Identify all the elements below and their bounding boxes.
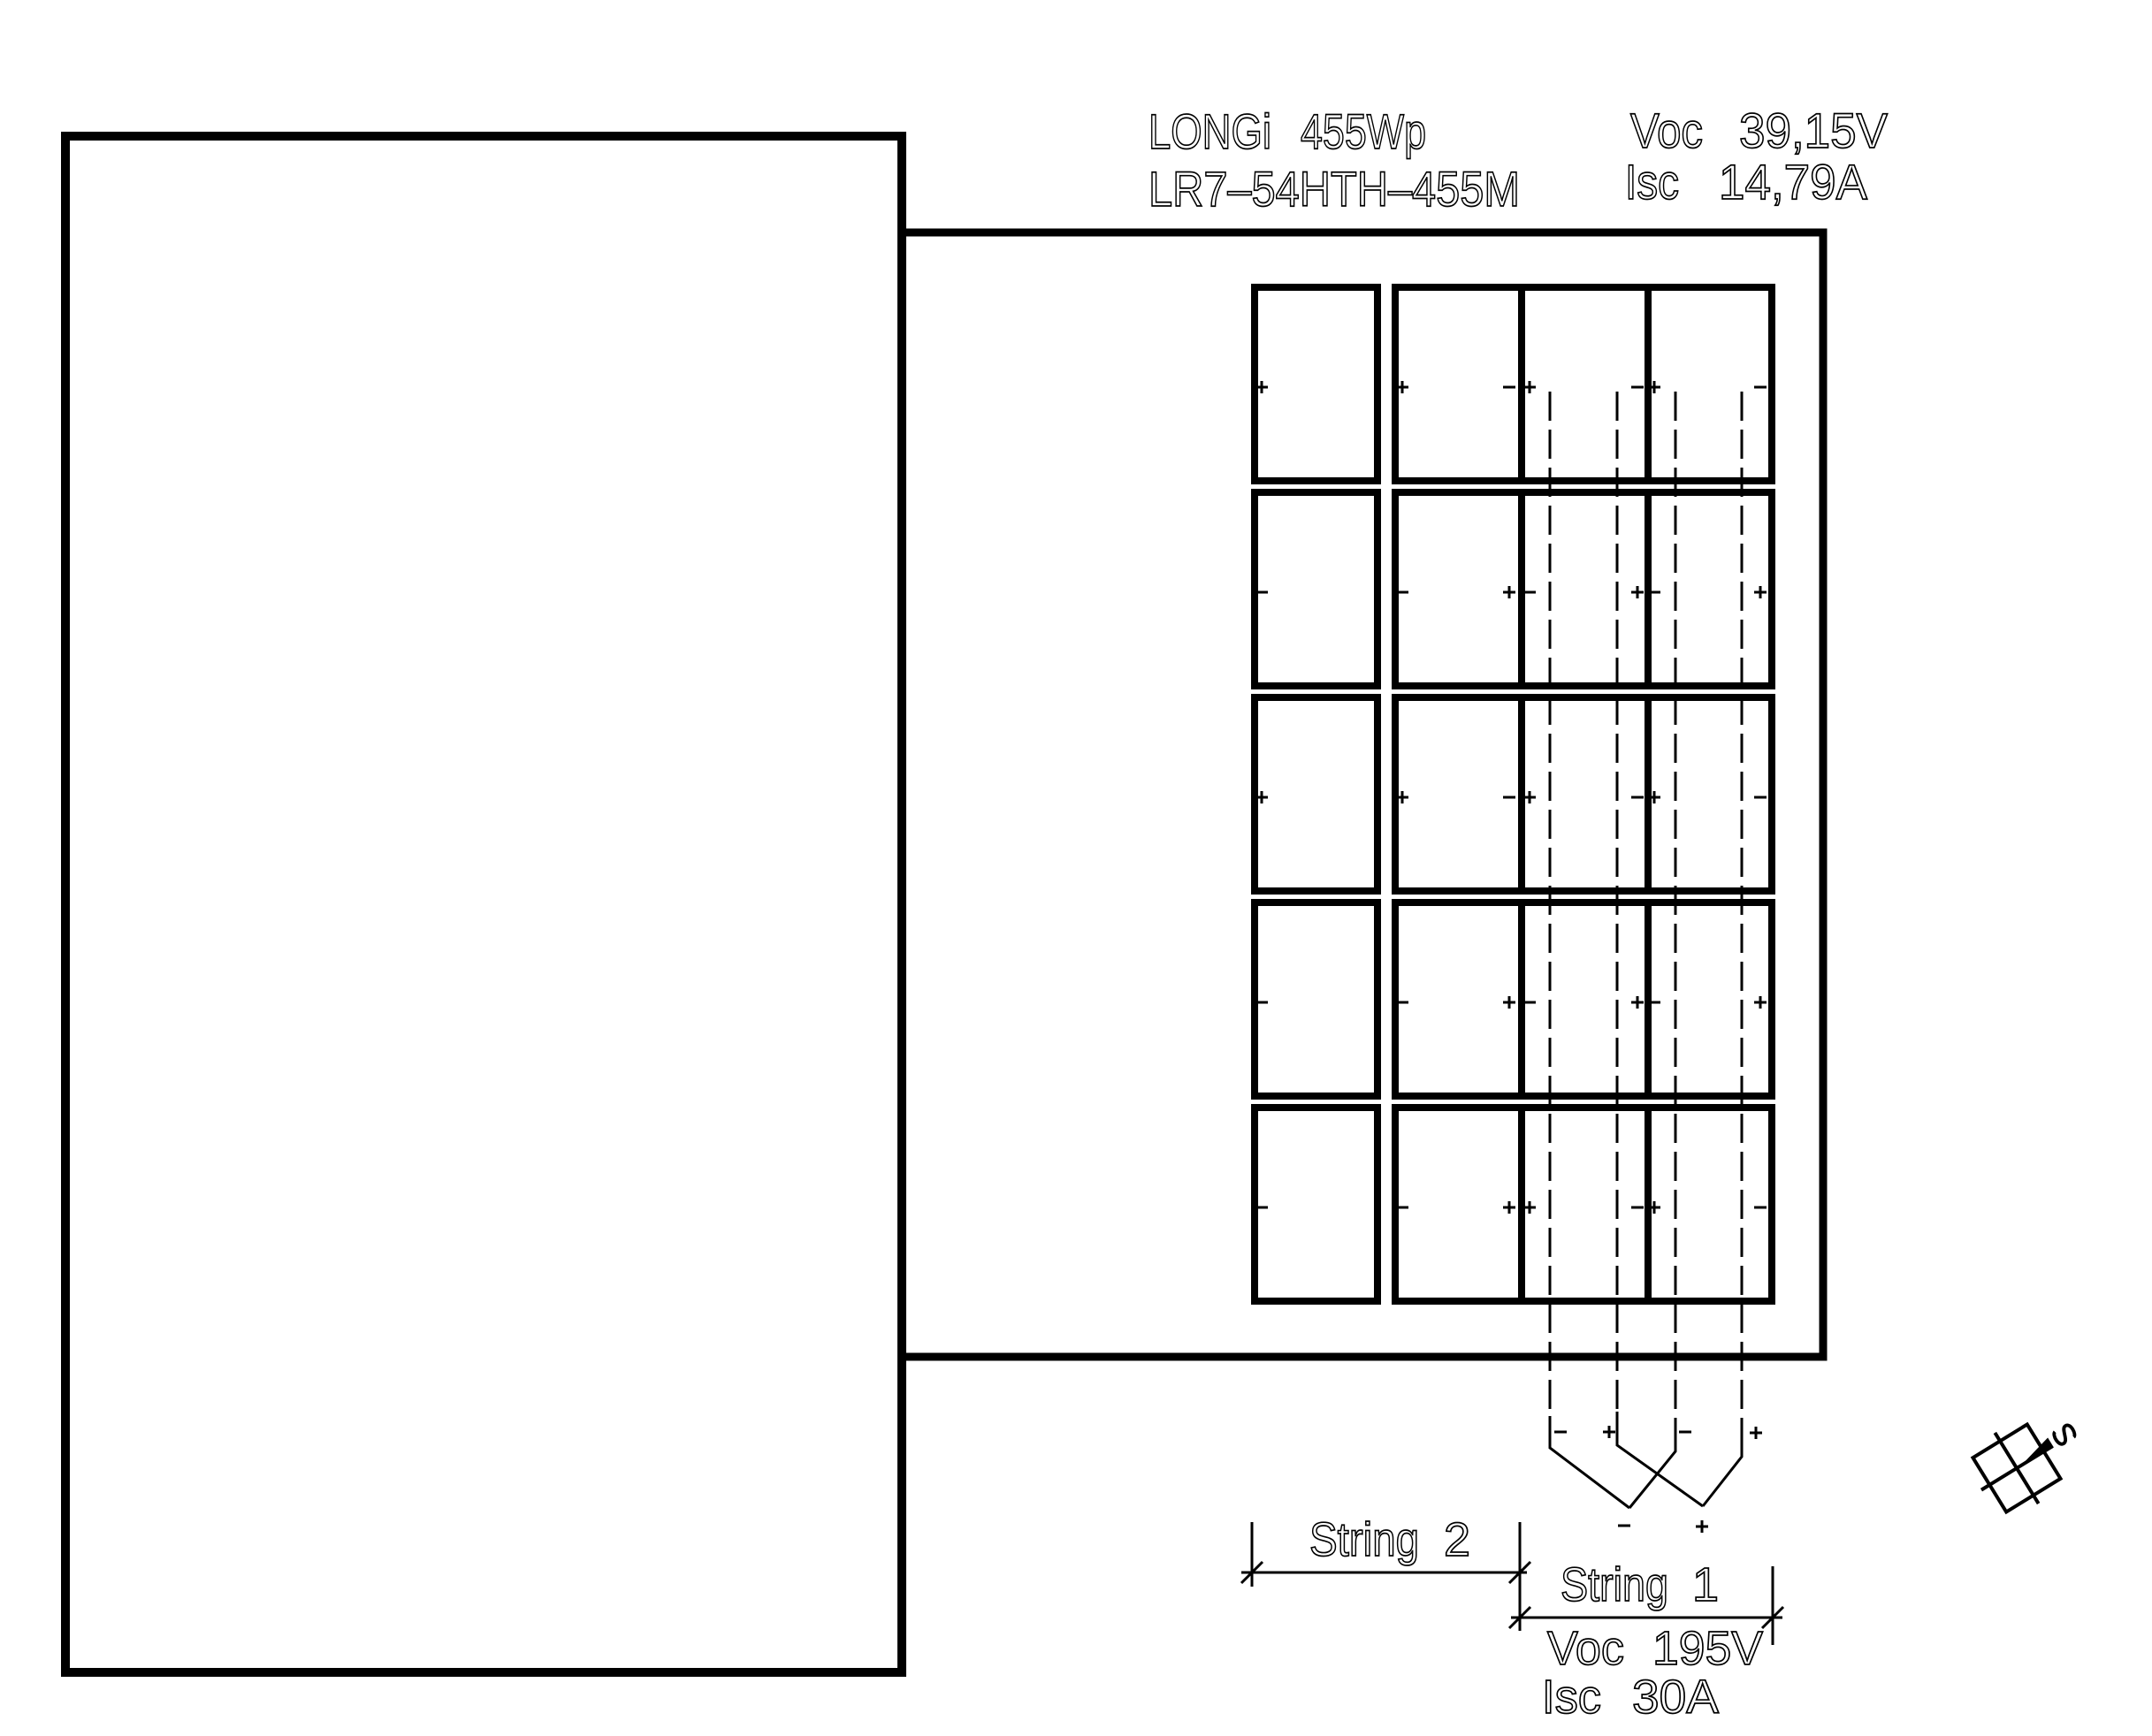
svg-text:Voc: Voc: [1630, 103, 1703, 158]
svg-text:LR7–54HTH–455M: LR7–54HTH–455M: [1148, 161, 1520, 217]
svg-text:195V: 195V: [1652, 1622, 1763, 1675]
svg-text:Isc: Isc: [1542, 1671, 1601, 1724]
svg-text:455Wp: 455Wp: [1301, 103, 1426, 159]
svg-text:39,15V: 39,15V: [1739, 103, 1889, 158]
svg-text:1: 1: [1692, 1558, 1719, 1611]
svg-text:30A: 30A: [1632, 1671, 1719, 1724]
svg-text:Voc: Voc: [1547, 1622, 1624, 1675]
svg-text:14,79A: 14,79A: [1719, 154, 1868, 209]
svg-text:LONGi: LONGi: [1148, 103, 1271, 159]
svg-text:2: 2: [1444, 1513, 1470, 1566]
svg-text:String: String: [1561, 1558, 1668, 1611]
svg-text:String: String: [1309, 1513, 1419, 1566]
svg-text:Isc: Isc: [1625, 154, 1679, 209]
